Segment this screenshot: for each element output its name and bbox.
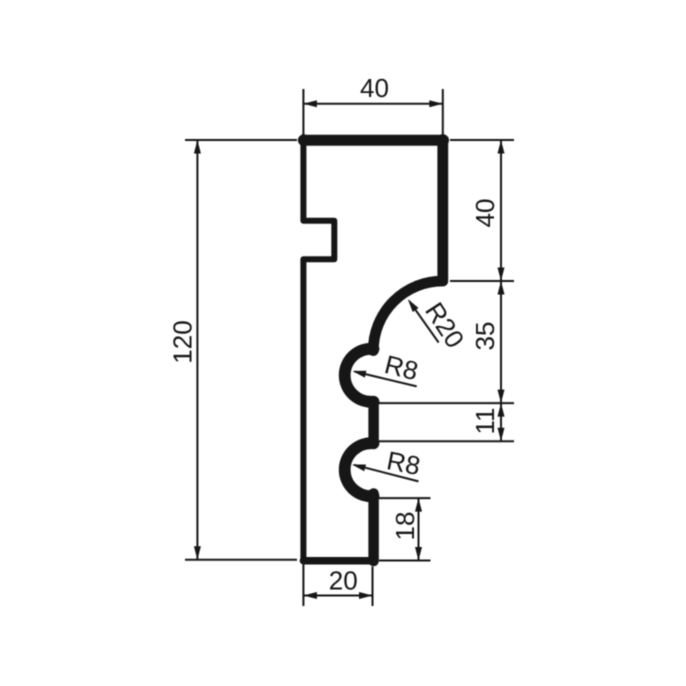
svg-text:11: 11 — [470, 408, 500, 435]
svg-text:40: 40 — [360, 73, 389, 103]
svg-text:R8: R8 — [384, 445, 422, 481]
svg-text:18: 18 — [390, 512, 420, 541]
svg-text:20: 20 — [329, 566, 358, 596]
svg-text:40: 40 — [470, 199, 500, 228]
svg-text:35: 35 — [470, 322, 500, 351]
svg-text:120: 120 — [168, 320, 198, 363]
